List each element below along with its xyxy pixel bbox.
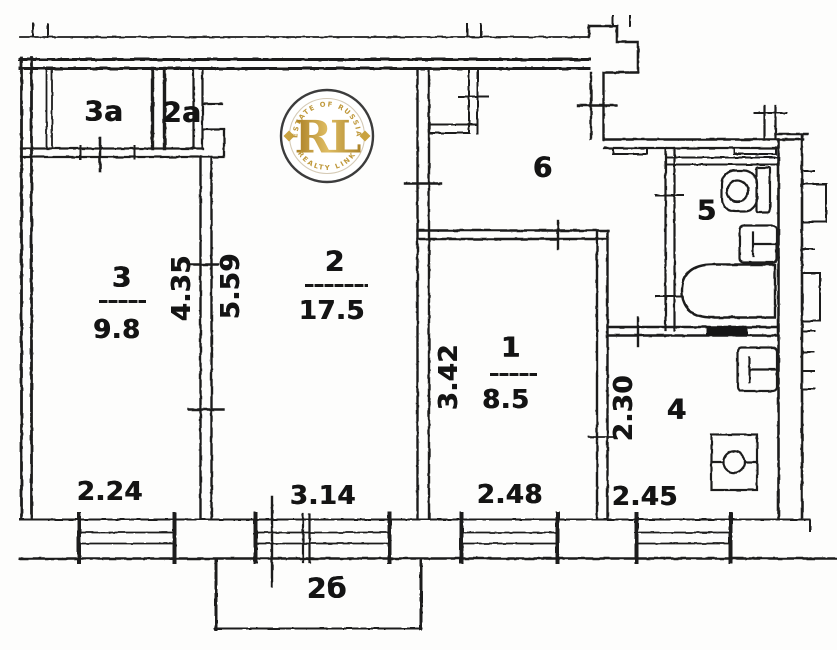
realty-watermark: RL ESTATE OF RUSSIA REALTY LINK <box>281 90 373 182</box>
floor-plan: RL ESTATE OF RUSSIA REALTY LINK 3а 2а 3 … <box>0 0 837 650</box>
dim-room3-height: 4.35 <box>167 255 197 321</box>
vent-shaft <box>706 327 748 336</box>
room-1-area: 8.5 <box>482 385 530 415</box>
bathroom-sink-icon <box>740 226 777 263</box>
room-2-underline <box>305 284 368 287</box>
room-4-label: 4 <box>667 393 687 426</box>
kitchen-sink-icon <box>738 348 778 392</box>
dim-room2-width: 3.14 <box>290 481 356 511</box>
room-1-underline <box>490 373 537 376</box>
toilet-icon <box>722 168 770 213</box>
room-2-label: 2 <box>325 245 345 278</box>
dim-room4-width: 2.45 <box>612 482 678 512</box>
stove-icon <box>712 435 758 491</box>
room-1-label: 1 <box>501 331 521 364</box>
room-3-area: 9.8 <box>93 315 141 345</box>
room-3a-label: 3а <box>84 95 123 128</box>
balcony-label: 2б <box>307 572 347 605</box>
room-3-label: 3 <box>112 261 132 294</box>
room-2-area: 17.5 <box>299 296 365 326</box>
room-2a-label: 2а <box>162 96 201 129</box>
interior-walls <box>21 69 778 519</box>
room-6-label: 6 <box>533 151 553 184</box>
dim-room3-width: 2.24 <box>77 477 143 507</box>
room-5-label: 5 <box>697 194 717 227</box>
room-3-underline <box>99 300 146 303</box>
dim-room1-height: 3.42 <box>434 344 464 410</box>
bathtub-icon <box>682 265 775 318</box>
dim-room4-height: 2.30 <box>609 375 639 441</box>
dim-room1-width: 2.48 <box>477 480 543 510</box>
dim-room2-height: 5.59 <box>216 253 246 319</box>
